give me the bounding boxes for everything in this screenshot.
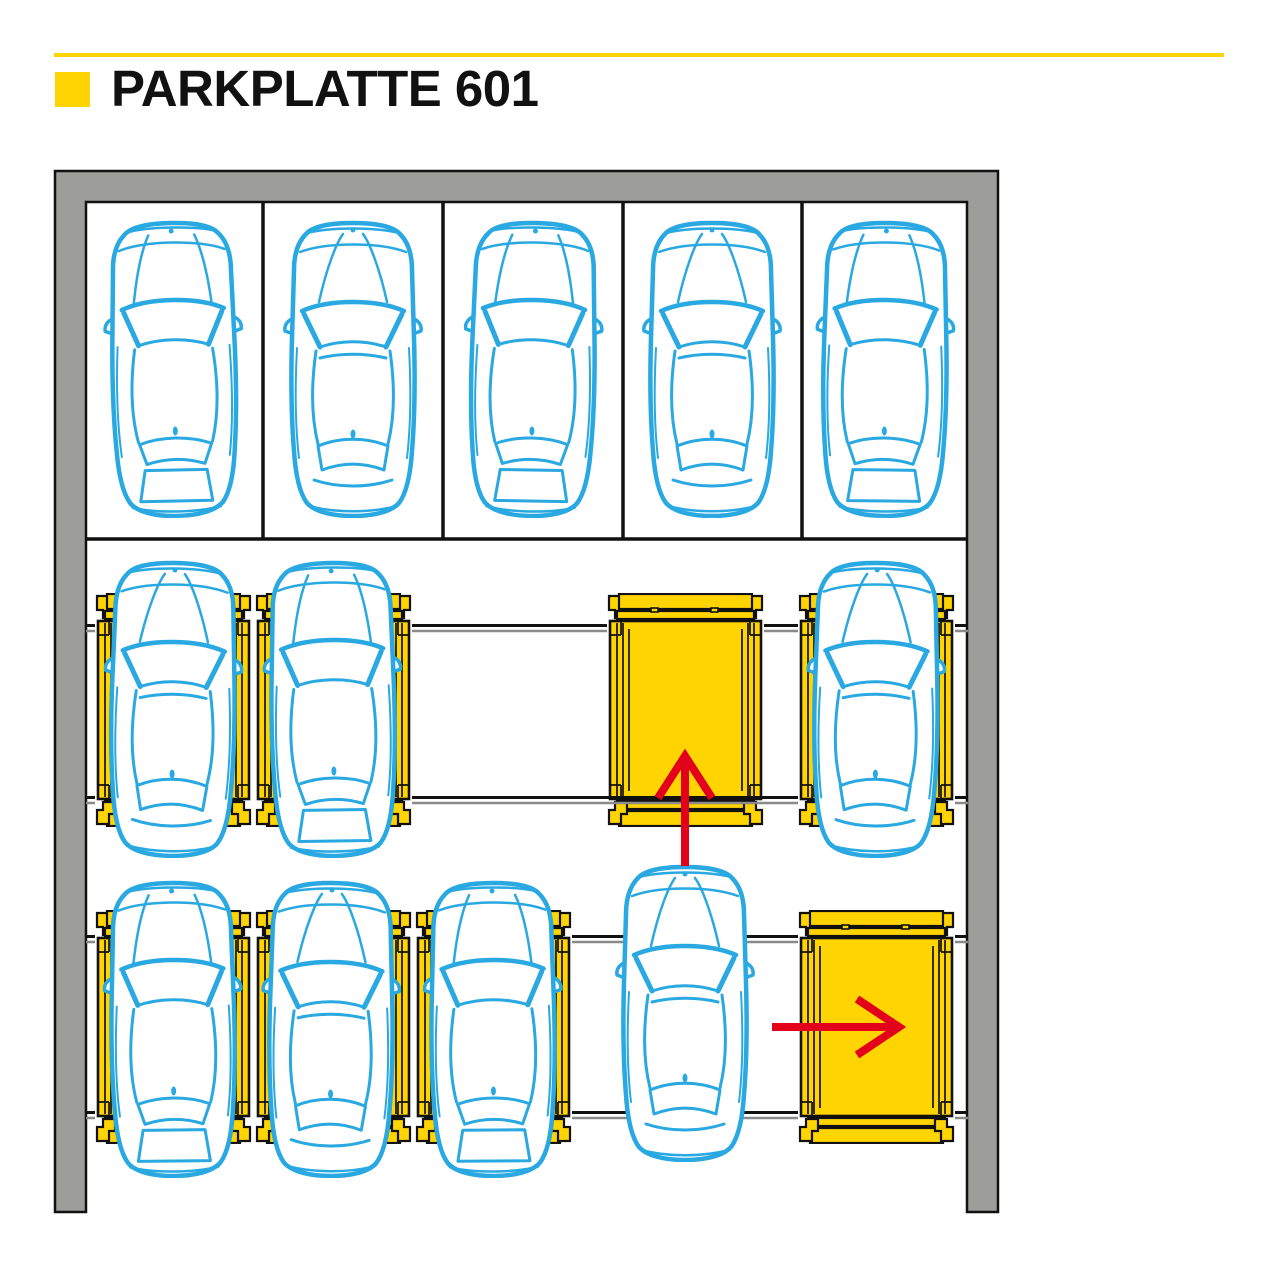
page: PARKPLATTE 601 bbox=[0, 0, 1280, 1280]
parked-car bbox=[103, 222, 245, 518]
parked-car bbox=[103, 882, 242, 1176]
parked-car bbox=[263, 562, 403, 857]
parked-car bbox=[285, 223, 421, 516]
parked-car bbox=[262, 883, 400, 1177]
parked-car bbox=[424, 883, 562, 1177]
parking-plan bbox=[0, 0, 1280, 1280]
parked-car bbox=[807, 562, 946, 856]
parking-system-plan-svg bbox=[0, 0, 1280, 1280]
parked-car bbox=[644, 223, 780, 516]
parked-car bbox=[462, 222, 603, 517]
parked-car bbox=[103, 562, 243, 857]
parked-car bbox=[815, 222, 954, 516]
transfer-car bbox=[617, 867, 753, 1160]
